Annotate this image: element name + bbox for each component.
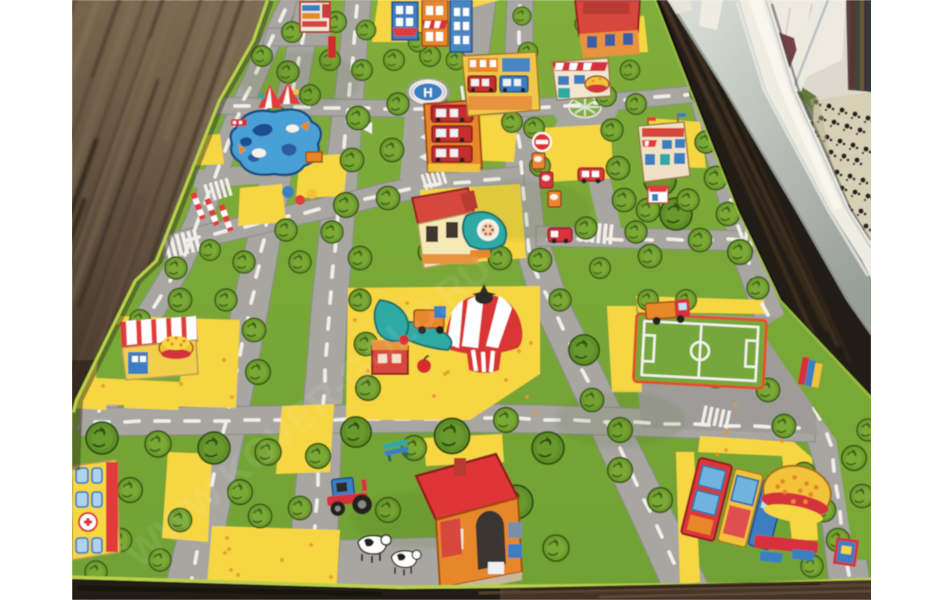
svg-text:H: H [423,85,432,100]
